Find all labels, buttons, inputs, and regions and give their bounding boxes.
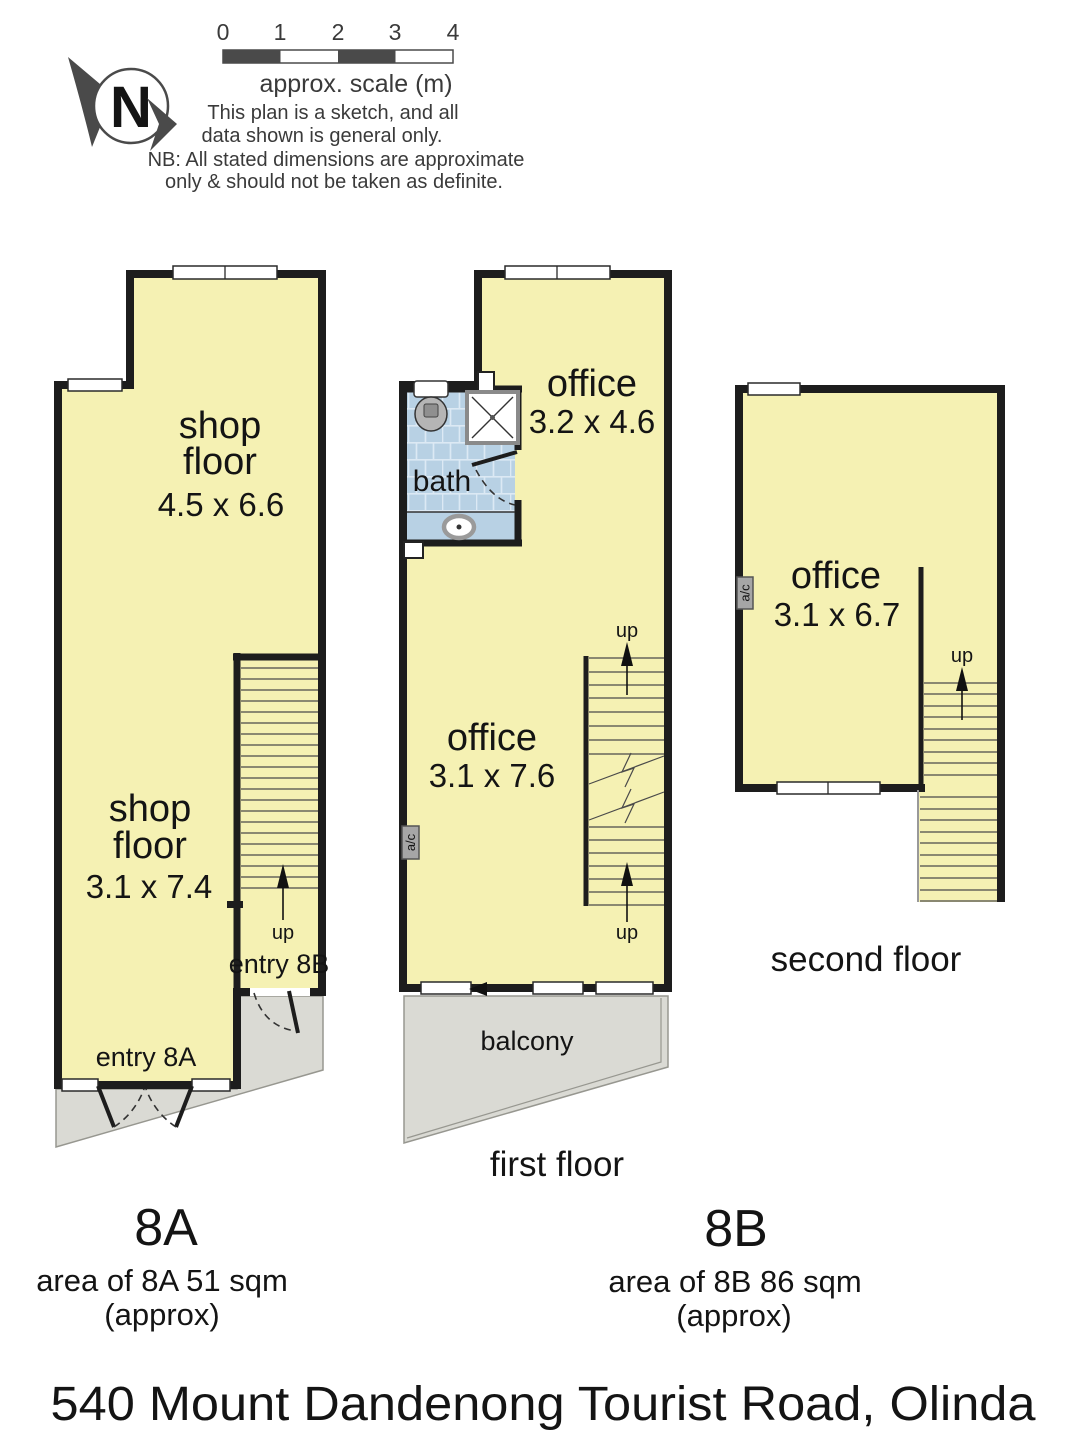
balcony-area: [404, 996, 668, 1143]
scale-tick-3: 3: [389, 19, 402, 45]
plan-8b-second-floor: a/c office 3.1 x 6.7 up second floor: [735, 383, 1005, 979]
sketch-note-line1: This plan is a sketch, and all: [207, 102, 458, 124]
up-label-first-top: up: [616, 620, 638, 642]
window-first-bottom-2: [533, 982, 583, 994]
window-first-bottom-3: [596, 982, 653, 994]
scale-bar-seg1: [223, 50, 281, 63]
unit-8a-label: 8A: [134, 1199, 198, 1257]
entry-8a-label: entry 8A: [96, 1042, 197, 1072]
scale-tick-4: 4: [447, 19, 460, 45]
up-label-second: up: [951, 645, 973, 667]
room-dims-office-top: 3.2 x 4.6: [529, 403, 656, 440]
wall-jog-8a: [227, 901, 243, 908]
north-letter: N: [110, 75, 152, 140]
room-dims-office-second: 3.1 x 6.7: [774, 596, 901, 633]
room-dims-shop-top: 4.5 x 6.6: [158, 486, 285, 523]
window-8a-left: [68, 379, 122, 391]
scale-tick-2: 2: [332, 19, 345, 45]
plan-8b-first-floor: a/c office 3.2 x 4.6 bath office 3.1 x 7…: [399, 266, 668, 1184]
balcony-label: balcony: [480, 1026, 574, 1056]
scale-tick-0: 0: [217, 19, 230, 45]
nb-note-line2: only & should not be taken as definite.: [165, 171, 503, 193]
entry-8b-label: entry 8B: [229, 949, 330, 979]
scale-bar-seg2: [338, 50, 396, 63]
floor-plan-canvas: N 0 1 2 3 4 approx. scale (m) This plan …: [0, 0, 1086, 1448]
door-sill-8a-left: [62, 1079, 98, 1091]
toilet-tank-icon: [414, 381, 448, 397]
door-gap-8b-entry: [250, 988, 310, 996]
room-label-office-top: office: [547, 363, 637, 405]
shower-drain: [490, 415, 495, 420]
window-first-bottom-1: [421, 982, 471, 994]
unit-8a-caption: 8A area of 8A 51 sqm (approx): [36, 1199, 288, 1332]
sketch-note-line2: data shown is general only.: [202, 125, 443, 147]
room-dims-shop-bottom: 3.1 x 7.4: [86, 868, 213, 905]
room-label-shop-bottom-1: shop: [109, 788, 191, 830]
room-label-office-second: office: [791, 555, 881, 597]
room-label-shop-bottom-2: floor: [113, 825, 187, 867]
scale-bar: 0 1 2 3 4 approx. scale (m) This plan is…: [148, 19, 525, 193]
floorplan-page: N 0 1 2 3 4 approx. scale (m) This plan …: [0, 0, 1086, 1448]
scale-caption: approx. scale (m): [259, 70, 452, 98]
unit-8a-area: area of 8A 51 sqm: [36, 1263, 288, 1298]
north-symbol: N: [68, 57, 177, 151]
room-label-office-main: office: [447, 717, 537, 759]
wall-notch-bottom: [404, 542, 423, 558]
wall-notch-top: [478, 372, 494, 391]
address-title: 540 Mount Dandenong Tourist Road, Olinda: [51, 1378, 1036, 1431]
room-dims-office-main: 3.1 x 7.6: [429, 757, 556, 794]
scale-tick-1: 1: [274, 19, 287, 45]
first-floor-caption: first floor: [490, 1145, 625, 1184]
ac-label-first: a/c: [403, 833, 418, 851]
door-sill-8a-right: [192, 1079, 230, 1091]
sink-drain: [457, 525, 462, 530]
unit-8b-area: area of 8B 86 sqm: [608, 1264, 861, 1299]
ac-label-second: a/c: [738, 584, 753, 602]
unit-8b-approx: (approx): [676, 1298, 791, 1333]
plan-8a-ground-floor: shop floor 4.5 x 6.6 shop floor 3.1 x 7.…: [56, 266, 329, 1147]
room-label-shop-top-2: floor: [183, 441, 257, 483]
unit-8b-caption: 8B area of 8B 86 sqm (approx): [608, 1200, 861, 1333]
stair-treads-8a: [241, 668, 318, 888]
unit-8b-label: 8B: [704, 1200, 768, 1258]
up-label-8a: up: [272, 922, 294, 944]
unit-8a-approx: (approx): [104, 1297, 219, 1332]
toilet-seat-detail: [424, 404, 438, 417]
bath-label: bath: [413, 465, 471, 498]
nb-note-line1: NB: All stated dimensions are approximat…: [148, 149, 525, 171]
up-label-first-bottom: up: [616, 922, 638, 944]
window-second-top: [748, 383, 800, 395]
second-floor-caption: second floor: [771, 940, 962, 979]
